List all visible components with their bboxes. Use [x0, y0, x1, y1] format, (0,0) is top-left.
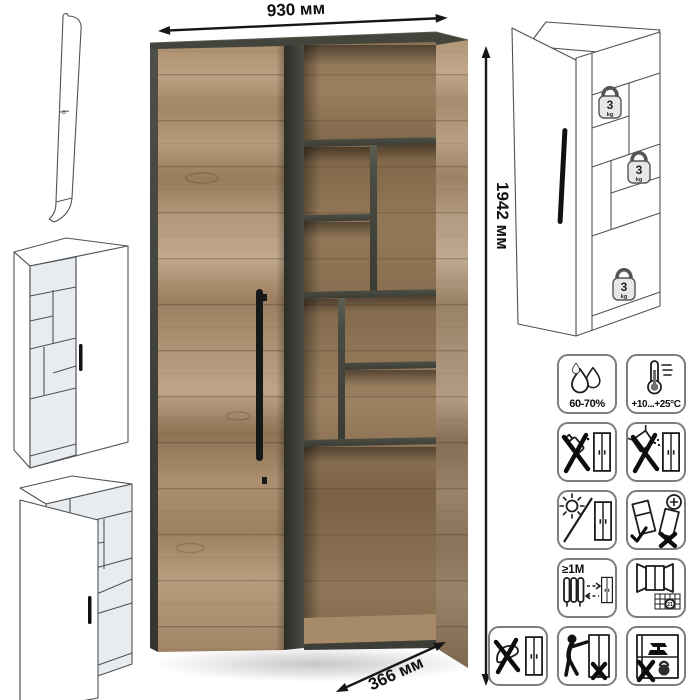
wireframe-shelf-load-diagram: 3 kg 3 kg 3 kg: [498, 6, 694, 344]
cabinet-door: [158, 46, 284, 652]
height-dimension: 1942 мм: [470, 44, 522, 696]
no-climbing-icon: [490, 628, 546, 684]
care-tile-ventilation: 21: [626, 558, 686, 618]
care-tile-no-sunlight: [557, 490, 617, 550]
svg-text:kg: kg: [636, 177, 642, 183]
no-pushing-icon: [559, 628, 615, 684]
no-solvents-icon: [559, 424, 615, 480]
care-tile-no-abrasives: [626, 422, 686, 482]
height-dimension-label: 1942 мм: [492, 182, 512, 250]
no-sunlight-icon: [559, 492, 615, 548]
svg-text:3: 3: [636, 163, 643, 177]
heat-distance-icon: ≥1M: [559, 560, 615, 616]
humidity-drops-icon: [559, 358, 615, 396]
care-tile-temperature: +10...+25°C: [626, 354, 686, 414]
svg-text:kg: kg: [607, 112, 613, 118]
center-divider-panel: [284, 45, 304, 650]
humidity-label: 60-70%: [559, 398, 615, 410]
care-tile-heat-distance: ≥1M: [557, 558, 617, 618]
wireframe-door-left-shelves-right: [0, 468, 140, 700]
cabinet-left-edge: [150, 49, 158, 652]
care-tile-tilt-moving: [626, 490, 686, 550]
temperature-label: +10...+25°C: [628, 399, 684, 410]
door-handle-drawing: [22, 6, 106, 230]
care-tile-humidity: 60-70%: [557, 354, 617, 414]
furniture-spec-sheet: 3 kg 3 kg 3 kg: [0, 0, 694, 700]
care-tile-no-climbing: [488, 626, 548, 686]
care-tile-no-pushing: [557, 626, 617, 686]
acclimatization-label: 21: [667, 602, 673, 608]
height-dimension-arrow: [470, 44, 522, 696]
heat-distance-label: ≥1M: [562, 564, 584, 576]
ventilation-window-icon: 21: [628, 560, 684, 616]
svg-text:kg: kg: [621, 294, 627, 300]
care-tile-no-heavy-items: [626, 626, 686, 686]
care-tile-no-solvents: [557, 422, 617, 482]
wireframe-shelves-left-door-right: [0, 226, 140, 474]
tilt-moving-icon: [628, 492, 684, 548]
product-photo: [140, 28, 480, 700]
shelf-divider: [370, 145, 377, 294]
no-abrasives-icon: [628, 424, 684, 480]
no-heavy-items-icon: [628, 628, 684, 684]
depth-dimension: 366 мм: [318, 628, 468, 700]
shelf-divider: [338, 298, 345, 442]
thermometer-icon: [628, 358, 684, 396]
svg-text:3: 3: [607, 98, 614, 112]
shelf-unit: [304, 42, 436, 650]
svg-text:3: 3: [621, 280, 628, 294]
width-dimension: 930 мм: [146, 0, 466, 40]
